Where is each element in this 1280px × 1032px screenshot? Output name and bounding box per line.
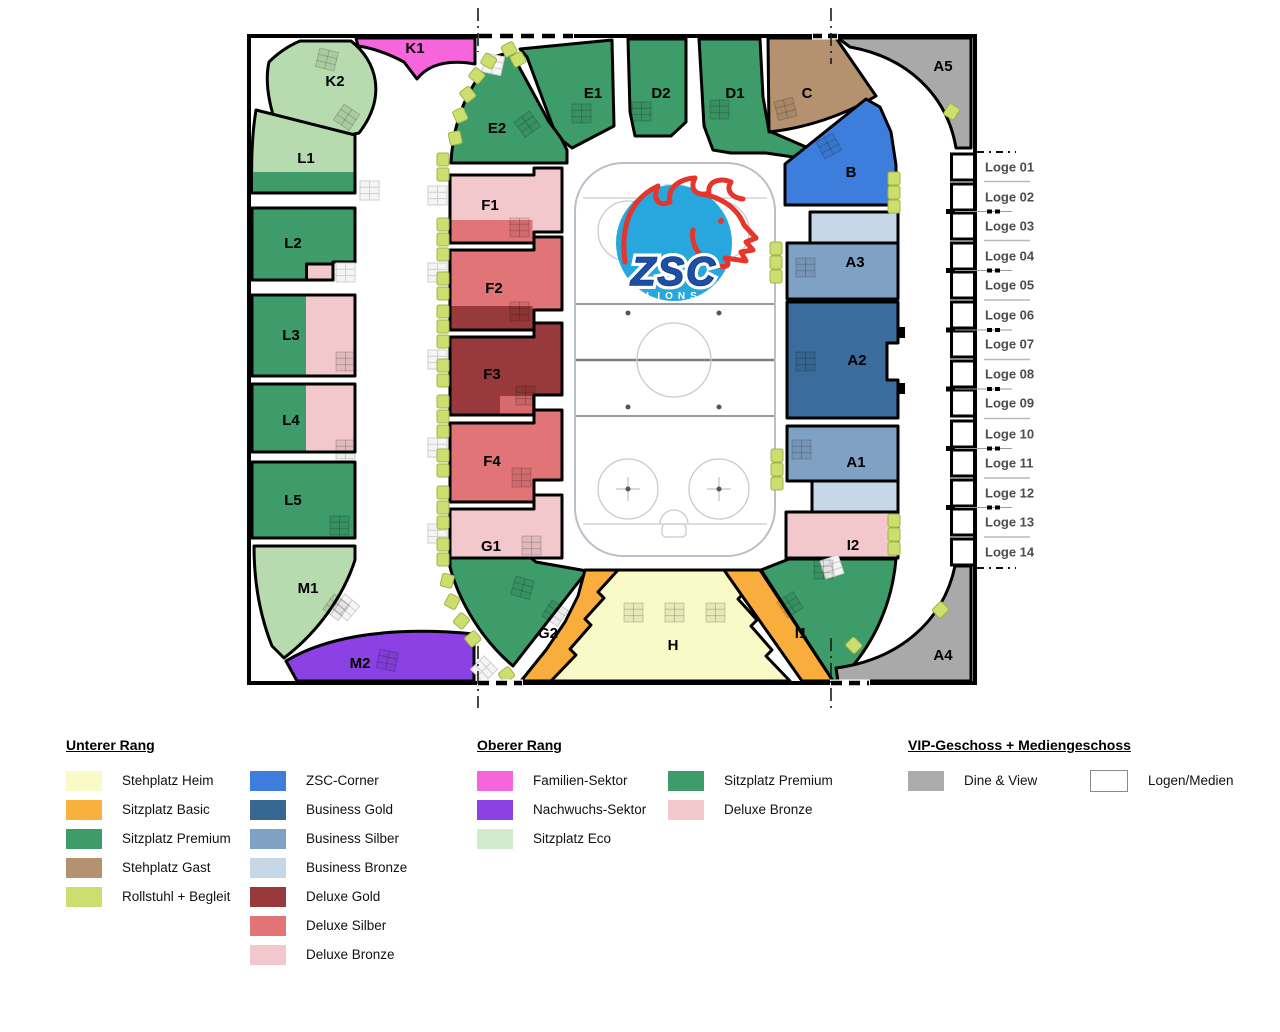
legend-swatch [250, 771, 286, 791]
legend-item: Logen/Medien [1090, 766, 1234, 795]
loge-box[interactable] [952, 213, 975, 239]
legend-item: Deluxe Bronze [668, 795, 833, 824]
loge-label: Loge 13 [985, 515, 1034, 530]
svg-text:F3: F3 [483, 366, 501, 383]
loge-label: Loge 02 [985, 190, 1034, 205]
svg-text:M1: M1 [298, 580, 319, 597]
legend-item: Stehplatz Gast [66, 853, 250, 882]
legend-swatch [668, 771, 704, 791]
legend-group: Unterer RangStehplatz HeimSitzplatz Basi… [66, 737, 407, 969]
legend-label: Sitzplatz Basic [122, 802, 210, 817]
legend-label: Rollstuhl + Begleit [122, 889, 230, 904]
svg-text:A2: A2 [847, 352, 866, 369]
loge-box[interactable] [952, 302, 975, 328]
svg-text:ZSC: ZSC [630, 250, 717, 294]
legend-label: Business Silber [306, 831, 399, 846]
svg-text:D2: D2 [651, 85, 670, 102]
svg-text:F1: F1 [481, 197, 499, 214]
legend-label: Deluxe Bronze [724, 802, 813, 817]
legend-swatch [250, 858, 286, 878]
legend-item: Deluxe Gold [250, 882, 407, 911]
section-L2-bronze-patch [307, 264, 334, 280]
svg-text:G2: G2 [538, 625, 558, 642]
loge-box[interactable] [952, 390, 975, 416]
svg-text:LIONS: LIONS [646, 291, 702, 302]
wall-tab [898, 383, 905, 394]
legend-label: Logen/Medien [1148, 773, 1234, 788]
loge-label: Loge 11 [985, 456, 1033, 471]
loge-label: Loge 03 [985, 219, 1034, 234]
loge-label: Loge 10 [985, 427, 1034, 442]
legend-item: Business Gold [250, 795, 407, 824]
svg-text:K1: K1 [405, 40, 424, 57]
loge-list: Loge 01Loge 02Loge 03Loge 04Loge 05Loge … [946, 152, 1035, 568]
svg-text:I2: I2 [847, 537, 860, 554]
legend-item: Sitzplatz Premium [66, 824, 250, 853]
legend-swatch [250, 887, 286, 907]
legend-item: Business Bronze [250, 853, 407, 882]
seatmap-page: K1 K2 L1 L2 L3 L4 L5 M1 M2 E2 [0, 0, 1280, 1032]
legend-item: Business Silber [250, 824, 407, 853]
loge-box[interactable] [952, 361, 975, 387]
loge-box[interactable] [952, 272, 975, 298]
arena-map: K1 K2 L1 L2 L3 L4 L5 M1 M2 E2 [0, 0, 1280, 720]
legend-item: Stehplatz Heim [66, 766, 250, 795]
legend-swatch [66, 800, 102, 820]
svg-text:L4: L4 [282, 412, 300, 429]
loge-label: Loge 08 [985, 367, 1034, 382]
svg-text:A3: A3 [845, 254, 864, 271]
legend-item: Nachwuchs-Sektor [477, 795, 668, 824]
legend-swatch [250, 800, 286, 820]
svg-text:A5: A5 [933, 58, 952, 75]
legend-label: Stehplatz Heim [122, 773, 214, 788]
loge-box[interactable] [952, 539, 975, 565]
loge-label: Loge 06 [985, 308, 1034, 323]
legend-label: Sitzplatz Eco [533, 831, 611, 846]
legend-label: Sitzplatz Premium [122, 831, 231, 846]
svg-text:E2: E2 [488, 120, 506, 137]
loge-box[interactable] [952, 331, 975, 357]
legend-label: Dine & View [964, 773, 1037, 788]
legend-label: Stehplatz Gast [122, 860, 211, 875]
loge-box[interactable] [952, 154, 975, 180]
legend-swatch [250, 945, 286, 965]
loge-label: Loge 05 [985, 278, 1034, 293]
legend-swatch [908, 771, 944, 791]
legend-swatch [66, 829, 102, 849]
svg-text:B: B [846, 164, 857, 181]
legend-item: Sitzplatz Eco [477, 824, 668, 853]
legend-group-title: Oberer Rang [477, 737, 833, 753]
svg-text:L1: L1 [297, 150, 315, 167]
legend-label: Sitzplatz Premium [724, 773, 833, 788]
svg-text:L5: L5 [284, 492, 302, 509]
legend-swatch [477, 829, 513, 849]
legend-group-title: Unterer Rang [66, 737, 407, 753]
legend-swatch [66, 887, 102, 907]
svg-text:C: C [802, 85, 813, 102]
svg-text:M2: M2 [350, 655, 371, 672]
wall-tab [898, 327, 905, 338]
loge-label: Loge 12 [985, 486, 1034, 501]
legend-group: Oberer RangFamilien-SektorNachwuchs-Sekt… [477, 737, 833, 853]
legend-label: Business Bronze [306, 860, 407, 875]
svg-text:D1: D1 [725, 85, 744, 102]
loge-label: Loge 01 [985, 160, 1034, 175]
svg-text:G1: G1 [481, 538, 501, 555]
loge-box[interactable] [952, 243, 975, 269]
legend-swatch [250, 829, 286, 849]
svg-text:L3: L3 [282, 327, 300, 344]
legend-label: Business Gold [306, 802, 393, 817]
legend-label: Deluxe Bronze [306, 947, 395, 962]
svg-text:L2: L2 [284, 235, 302, 252]
loge-label: Loge 04 [985, 249, 1035, 264]
svg-text:F4: F4 [483, 453, 501, 470]
legend-swatch [477, 800, 513, 820]
legend-swatch [66, 858, 102, 878]
legend-label: Deluxe Gold [306, 889, 380, 904]
loge-box[interactable] [952, 509, 975, 535]
loge-box[interactable] [952, 450, 975, 476]
svg-text:A1: A1 [846, 454, 865, 471]
svg-text:A4: A4 [933, 647, 953, 664]
loge-label: Loge 09 [985, 396, 1034, 411]
svg-text:E1: E1 [584, 85, 602, 102]
legend-item: Deluxe Silber [250, 911, 407, 940]
loge-box[interactable] [952, 184, 975, 210]
loge-box[interactable] [952, 480, 975, 506]
loge-box[interactable] [952, 421, 975, 447]
legend-group: VIP-Geschoss + MediengeschossDine & View… [908, 737, 1234, 795]
svg-text:H: H [668, 637, 679, 654]
legend-label: ZSC-Corner [306, 773, 379, 788]
legend-item: Familien-Sektor [477, 766, 668, 795]
legend-label: Deluxe Silber [306, 918, 386, 933]
svg-text:F2: F2 [485, 280, 503, 297]
svg-text:K2: K2 [325, 73, 344, 90]
legend-group-title: VIP-Geschoss + Mediengeschoss [908, 737, 1234, 753]
legend-label: Nachwuchs-Sektor [533, 802, 646, 817]
legend-item: Rollstuhl + Begleit [66, 882, 250, 911]
legend-item: Dine & View [908, 766, 1090, 795]
legend-item: Sitzplatz Premium [668, 766, 833, 795]
legend-label: Familien-Sektor [533, 773, 628, 788]
legend-swatch [668, 800, 704, 820]
section-I2[interactable]: I2 [786, 512, 898, 558]
legend-item: Sitzplatz Basic [66, 795, 250, 824]
loge-label: Loge 14 [985, 545, 1035, 560]
loge-label: Loge 07 [985, 337, 1034, 352]
svg-text:I1: I1 [795, 625, 808, 642]
legend-swatch [1090, 770, 1128, 792]
legend-item: Deluxe Bronze [250, 940, 407, 969]
legend-item: ZSC-Corner [250, 766, 407, 795]
legend-swatch [477, 771, 513, 791]
legend-swatch [250, 916, 286, 936]
legend-swatch [66, 771, 102, 791]
section-L1-premium-band [253, 172, 354, 192]
section-F1[interactable]: F1 [450, 168, 562, 243]
